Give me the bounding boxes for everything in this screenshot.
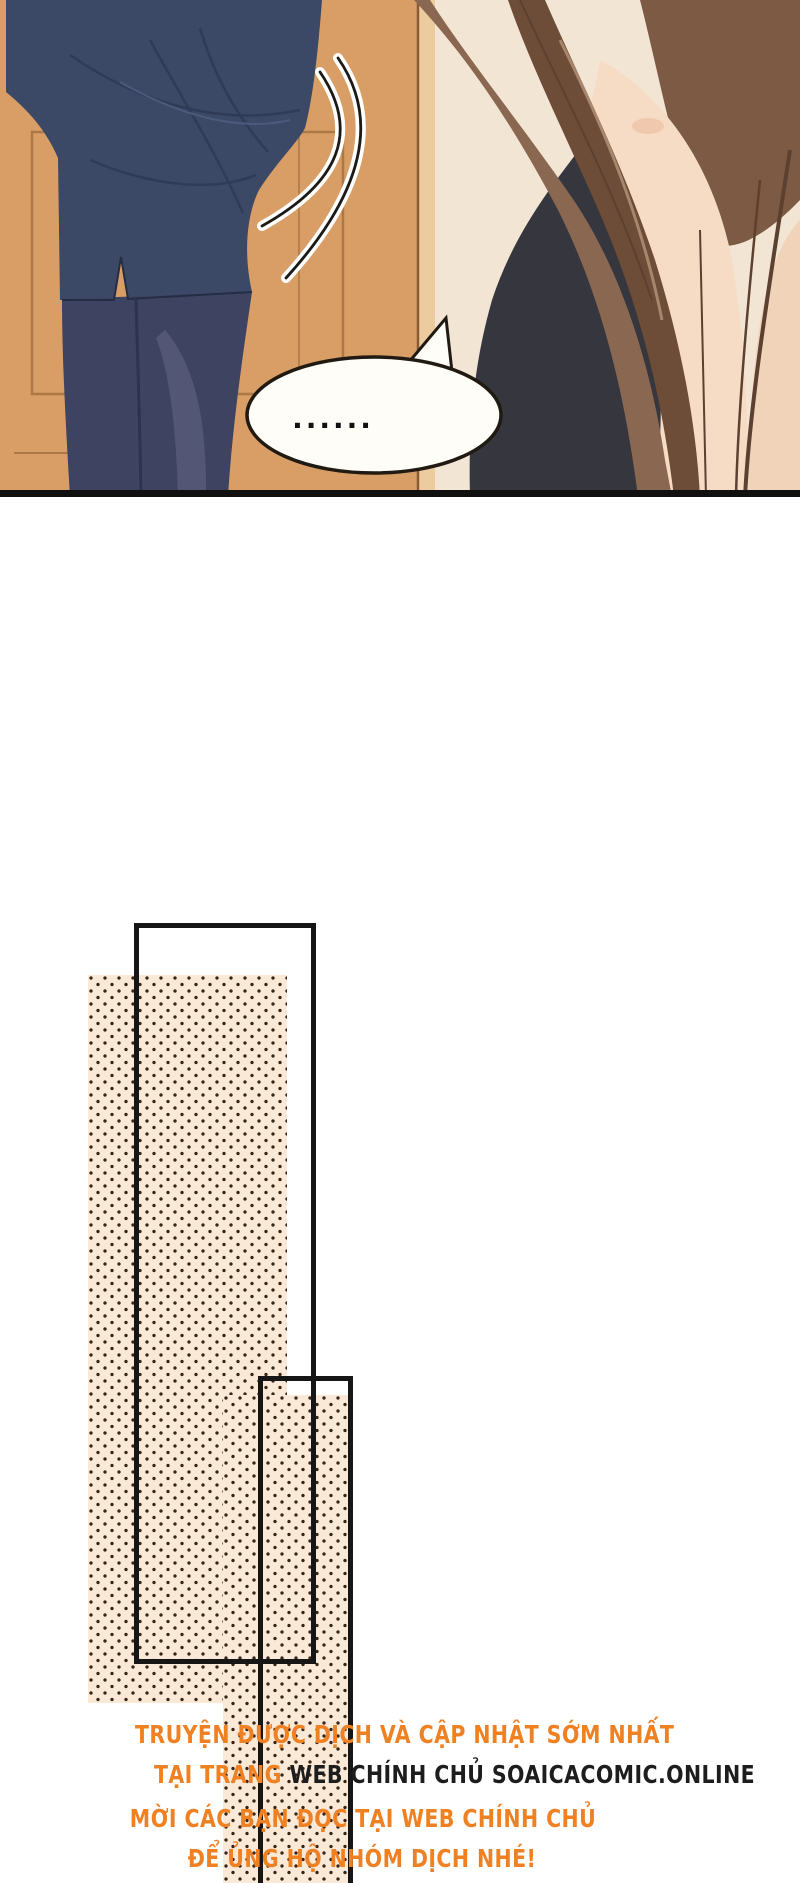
comic-panel: ...... [0, 0, 800, 497]
trousers [62, 292, 252, 497]
credit-line-3-text: MỜI CÁC BẠN ĐỌC TẠI WEB CHÍNH CHỦ [130, 1804, 596, 1833]
panel-bottom-border [0, 490, 800, 497]
credit-website-text: WEB CHÍNH CHỦ SOAICACOMIC.ONLINE [289, 1760, 755, 1789]
credit-line-2-prefix: TẠI TRANG [154, 1760, 289, 1789]
credit-line-1: TRUYỆN ĐƯỢC DỊCH VÀ CẬP NHẬT SỚM NHẤT [135, 1720, 627, 1750]
credit-line-4: ĐỂ ỦNG HỘ NHÓM DỊCH NHÉ! [116, 1844, 608, 1874]
comic-page: ...... TRUYỆN ĐƯỢC DỊCH VÀ CẬP NHẬT SỚM … [0, 0, 800, 1883]
credit-line-1-text: TRUYỆN ĐƯỢC DỊCH VÀ CẬP NHẬT SỚM NHẤT [135, 1720, 674, 1749]
credit-line-2: TẠI TRANG WEB CHÍNH CHỦ SOAICACOMIC.ONLI… [154, 1760, 646, 1790]
credit-line-4-text: ĐỂ ỦNG HỘ NHÓM DỊCH NHÉ! [188, 1844, 537, 1873]
credit-line-3: MỜI CÁC BẠN ĐỌC TẠI WEB CHÍNH CHỦ [117, 1804, 609, 1834]
speech-bubble-text: ...... [292, 402, 374, 435]
skin-blush [632, 118, 664, 134]
